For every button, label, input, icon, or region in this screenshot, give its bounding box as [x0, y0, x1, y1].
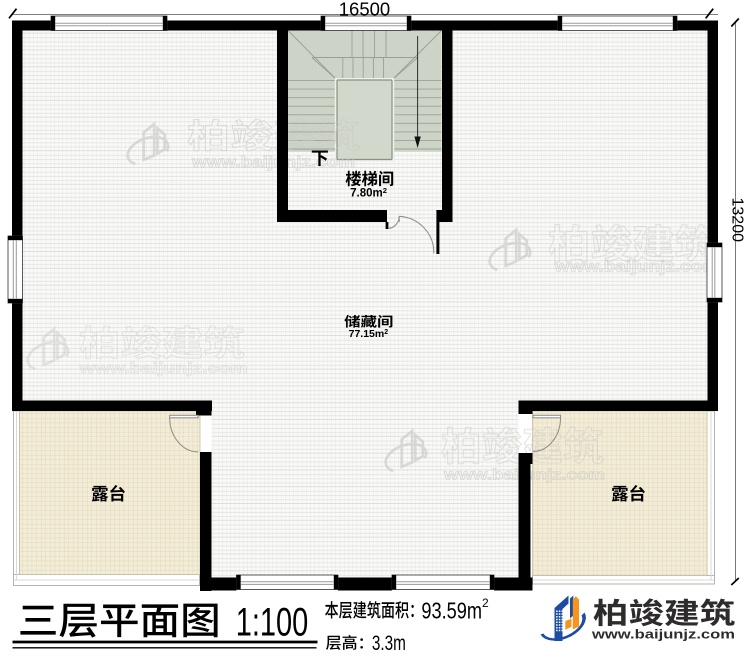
svg-text:www.baijunjz.com: www.baijunjz.com	[78, 360, 247, 377]
svg-text:www.baijunjz.com: www.baijunjz.com	[191, 154, 355, 171]
svg-text:16500: 16500	[339, 0, 390, 20]
svg-text:7.80m2: 7.80m2	[350, 186, 387, 200]
svg-text:2: 2	[482, 596, 489, 610]
svg-text:77.15m2: 77.15m2	[349, 328, 389, 340]
svg-text:www.baijunjz.com: www.baijunjz.com	[553, 259, 719, 276]
svg-text:1:100: 1:100	[236, 600, 309, 644]
svg-text:www.baijunjz.com: www.baijunjz.com	[591, 627, 735, 641]
svg-text:13200: 13200	[729, 198, 746, 243]
svg-text:3.3m: 3.3m	[372, 632, 406, 655]
svg-text:93.59m: 93.59m	[421, 598, 482, 624]
